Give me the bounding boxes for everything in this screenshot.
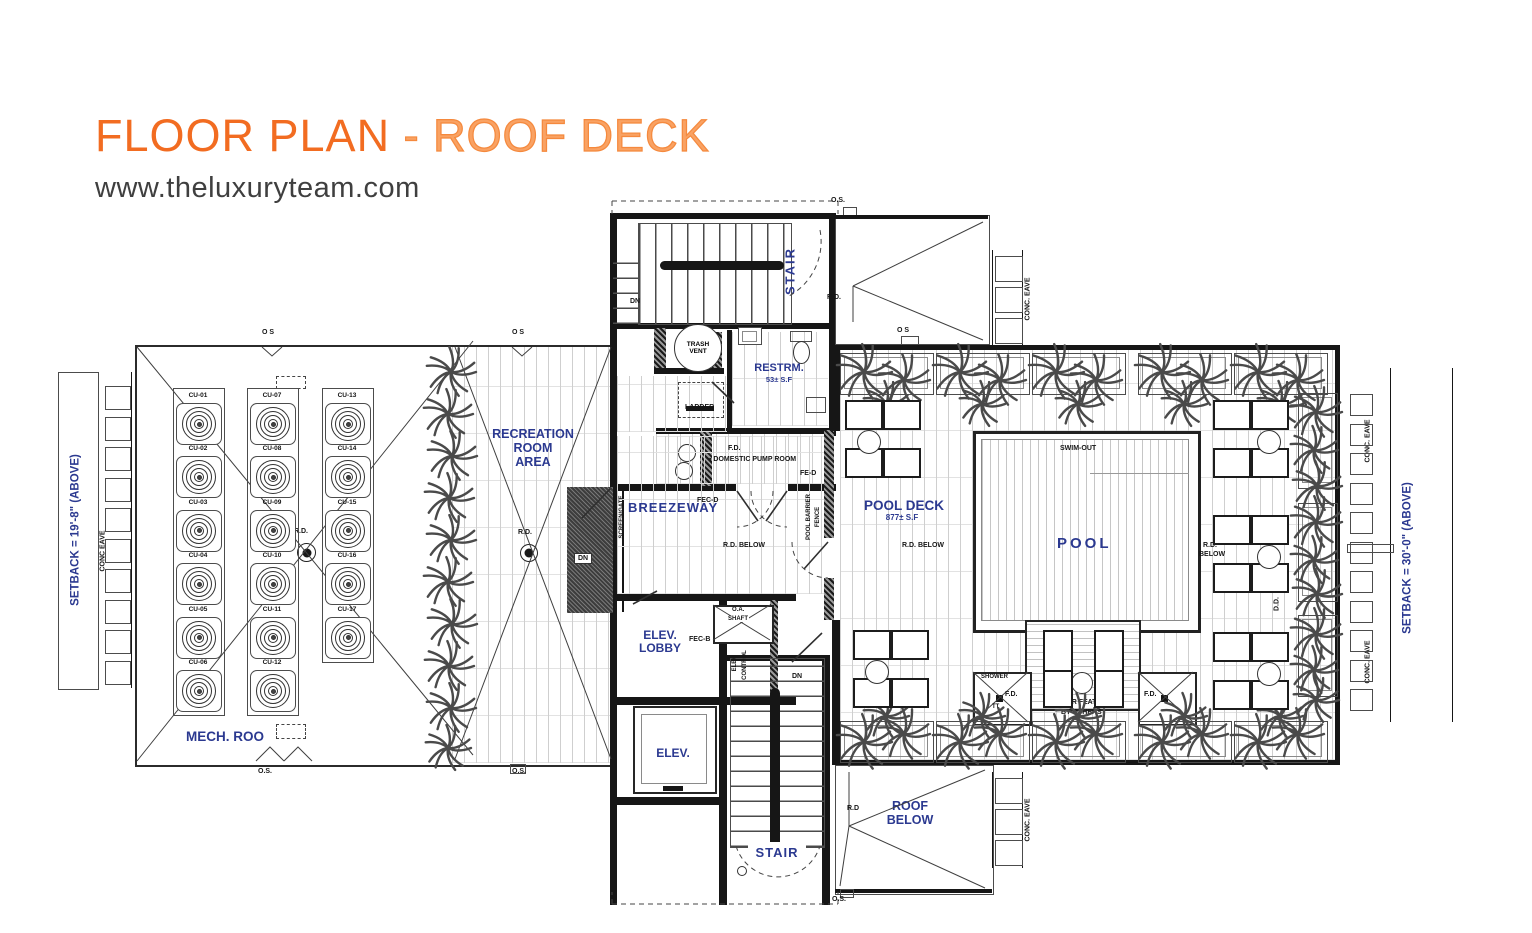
w bbox=[610, 594, 796, 601]
lounge-chair bbox=[883, 448, 921, 478]
pool-deck-area-label: 877± S.F bbox=[864, 514, 940, 523]
eave-tile bbox=[105, 478, 131, 502]
annotation-shower: SHOWER bbox=[981, 674, 1008, 680]
cu-label: CU-08 bbox=[250, 446, 294, 454]
circ bbox=[271, 689, 276, 694]
eave-tile bbox=[995, 778, 1023, 804]
annotation-r-d: R.D bbox=[847, 805, 859, 812]
website-text: www.theluxuryteam.com bbox=[95, 172, 420, 205]
annotation-r-d-below: R.D. BELOW bbox=[902, 542, 944, 549]
element bbox=[960, 693, 1005, 738]
water-feature-chair bbox=[1043, 630, 1073, 672]
element: ELEV. bbox=[624, 629, 696, 642]
palm-tree bbox=[1055, 381, 1101, 432]
cu-unit bbox=[250, 456, 296, 498]
elevator-label: ELEV. bbox=[648, 747, 698, 760]
stair-top-label: STAIR bbox=[784, 247, 799, 295]
circ bbox=[197, 689, 202, 694]
element: AREA bbox=[488, 455, 578, 469]
table bbox=[1257, 662, 1281, 686]
cu-unit bbox=[325, 510, 371, 552]
cu-unit bbox=[176, 563, 222, 605]
element bbox=[884, 714, 888, 718]
w bbox=[719, 598, 727, 905]
lounge-chair bbox=[853, 630, 891, 660]
cu-label: CU-12 bbox=[250, 660, 294, 668]
annotation-r-d-: R.D. bbox=[827, 294, 841, 301]
eave-tile bbox=[995, 256, 1023, 282]
eave-tile bbox=[1350, 394, 1373, 416]
eave-tile bbox=[1350, 542, 1373, 564]
element bbox=[1162, 693, 1207, 738]
annotation-conc-eave: CONC. EAVE bbox=[1025, 277, 1032, 320]
table bbox=[865, 660, 889, 684]
element bbox=[1054, 370, 1058, 374]
element bbox=[1076, 402, 1080, 406]
element bbox=[1056, 381, 1101, 426]
element bbox=[1315, 484, 1319, 488]
cu-label: CU-05 bbox=[176, 607, 220, 615]
annotation-d-d-: D.D. bbox=[1274, 597, 1281, 611]
cu-unit bbox=[250, 617, 296, 659]
circ bbox=[346, 475, 351, 480]
element bbox=[1314, 632, 1318, 636]
cu-unit bbox=[176, 403, 222, 445]
table bbox=[1257, 430, 1281, 454]
eave-tile bbox=[1350, 453, 1373, 475]
element: BELOW bbox=[878, 813, 942, 827]
element: LOBBY bbox=[624, 642, 696, 655]
w bbox=[822, 896, 830, 905]
cu-unit bbox=[250, 563, 296, 605]
eave-tile bbox=[1350, 512, 1373, 534]
lounge-chair bbox=[1213, 632, 1251, 662]
trash-vent: TRASHVENT bbox=[674, 324, 722, 372]
lounge-chair bbox=[1251, 515, 1289, 545]
w bbox=[992, 250, 993, 345]
element: ROOF bbox=[878, 799, 942, 813]
circ bbox=[346, 635, 351, 640]
circ bbox=[271, 528, 276, 533]
element bbox=[525, 549, 534, 558]
element bbox=[1055, 381, 1101, 427]
annotation-fec-b: FEC-B bbox=[689, 636, 710, 643]
pool-deck-label: POOL DECK bbox=[864, 498, 940, 513]
cu-unit bbox=[325, 563, 371, 605]
cu-unit bbox=[176, 617, 222, 659]
stair-top-side-steps bbox=[613, 258, 639, 324]
circ bbox=[271, 635, 276, 640]
annotation-o-a-: O.A. bbox=[731, 607, 745, 613]
annotation-conc-eave: CONC. EAVE bbox=[1025, 798, 1032, 841]
eave-tile bbox=[105, 600, 131, 624]
annotation-f-d-: F.D. bbox=[728, 445, 740, 452]
pool-label: POOL bbox=[1057, 536, 1112, 553]
element bbox=[1256, 370, 1260, 374]
palm-tree bbox=[1293, 677, 1339, 728]
w bbox=[610, 213, 617, 489]
w bbox=[835, 215, 988, 219]
table bbox=[857, 430, 881, 454]
eave-tile bbox=[995, 318, 1023, 344]
eave-tile bbox=[105, 630, 131, 654]
floor-plan: FLOOR PLAN - ROOF DECK www.theluxuryteam… bbox=[0, 0, 1532, 933]
lounge-chair bbox=[1213, 400, 1251, 430]
element bbox=[302, 548, 311, 557]
cu-label: CU-14 bbox=[325, 446, 369, 454]
annotation-fe-d: FE-D bbox=[800, 470, 816, 477]
eave-tile bbox=[1350, 601, 1373, 623]
element bbox=[1160, 370, 1164, 374]
element bbox=[426, 725, 471, 770]
lounge-chair bbox=[1213, 515, 1251, 545]
circ bbox=[737, 866, 747, 876]
annotation--domestic-pump-room: ▪ DOMESTIC PUMP ROOM bbox=[709, 456, 796, 463]
setback-right-label: SETBACK = 30'-0" (ABOVE) bbox=[1402, 482, 1415, 634]
cu-unit bbox=[250, 670, 296, 712]
annotation-f-d-: F.D. bbox=[1144, 691, 1156, 698]
w bbox=[610, 213, 836, 219]
annotation-o-s-: O.S. bbox=[258, 768, 272, 775]
eave-tile bbox=[1350, 424, 1373, 446]
cu-unit bbox=[250, 403, 296, 445]
circ bbox=[271, 582, 276, 587]
eave-tile bbox=[105, 386, 131, 410]
element bbox=[425, 725, 471, 771]
hw bbox=[824, 578, 834, 620]
element bbox=[449, 706, 453, 710]
element bbox=[1314, 520, 1318, 524]
cu-label: CU-09 bbox=[250, 500, 294, 508]
annotation-control: CONTROL bbox=[742, 650, 748, 680]
table bbox=[1071, 672, 1093, 694]
palm-tree bbox=[1161, 381, 1207, 432]
element: RECREATION bbox=[488, 427, 578, 441]
element bbox=[959, 381, 1005, 427]
annotation-fec-d: FEC-D bbox=[697, 497, 718, 504]
roof-drain bbox=[297, 543, 316, 562]
water-feature-chair bbox=[1094, 670, 1124, 708]
element bbox=[1312, 558, 1316, 562]
element bbox=[1294, 677, 1339, 722]
element bbox=[1314, 410, 1318, 414]
cu-unit bbox=[176, 670, 222, 712]
roof-below-label: ROOFBELOW bbox=[878, 799, 942, 827]
element bbox=[446, 746, 450, 750]
element bbox=[1312, 668, 1316, 672]
element bbox=[446, 412, 450, 416]
annotation-screen-gate: SCREEN/GATE bbox=[619, 496, 625, 539]
circ bbox=[197, 422, 202, 427]
lounge-chair bbox=[891, 630, 929, 660]
w bbox=[610, 797, 727, 805]
mop-sink bbox=[806, 397, 826, 413]
element bbox=[1315, 592, 1319, 596]
cu-label: CU-04 bbox=[176, 553, 220, 561]
a bbox=[1090, 473, 1189, 474]
element: TRASH bbox=[687, 341, 709, 348]
circ bbox=[271, 422, 276, 427]
annotation-f-d-: F.D. bbox=[1005, 691, 1017, 698]
palm-tree bbox=[959, 381, 1005, 432]
restroom-label: RESTRM. bbox=[730, 362, 828, 374]
circ bbox=[271, 475, 276, 480]
element bbox=[1293, 677, 1339, 723]
cu-label: CU-02 bbox=[176, 446, 220, 454]
dashR bbox=[276, 724, 306, 739]
eave-tile bbox=[105, 447, 131, 471]
element bbox=[447, 496, 451, 500]
element bbox=[1182, 402, 1186, 406]
eave-tile bbox=[1350, 689, 1373, 711]
water-feature-chair bbox=[1043, 670, 1073, 708]
cu-unit bbox=[176, 510, 222, 552]
eave-tile bbox=[105, 569, 131, 593]
water-feature-chair bbox=[1094, 630, 1124, 672]
cu-label: CU-10 bbox=[250, 553, 294, 561]
element bbox=[1162, 381, 1207, 426]
circ bbox=[346, 422, 351, 427]
lounge-chair bbox=[845, 400, 883, 430]
lounge-chair bbox=[1213, 563, 1251, 593]
element bbox=[980, 714, 984, 718]
circ bbox=[197, 582, 202, 587]
eave-tile bbox=[1350, 571, 1373, 593]
stair-bottom-rail bbox=[770, 688, 780, 848]
element bbox=[1314, 698, 1318, 702]
annotation-o-s: O S bbox=[262, 329, 274, 336]
eave-tile bbox=[1350, 630, 1373, 652]
toilet-bowl bbox=[793, 341, 810, 364]
eave-tile bbox=[1350, 660, 1373, 682]
title-sub: - ROOF DECK bbox=[390, 110, 710, 161]
annotation-r-d-: R.D. bbox=[518, 529, 532, 536]
element bbox=[1312, 448, 1316, 452]
mech-room-label: MECH. ROO bbox=[186, 729, 264, 744]
eave-tile bbox=[105, 539, 131, 563]
circ bbox=[197, 635, 202, 640]
element bbox=[449, 538, 453, 542]
element: ROOM bbox=[488, 441, 578, 455]
lounge-chair bbox=[1213, 448, 1251, 478]
element bbox=[1182, 714, 1186, 718]
eave-tile bbox=[1350, 483, 1373, 505]
w bbox=[610, 896, 617, 905]
tn2 bbox=[742, 331, 757, 342]
cu-label: CU-16 bbox=[325, 553, 369, 561]
circ bbox=[197, 475, 202, 480]
eave-tile bbox=[995, 840, 1023, 866]
recreation-room-label: RECREATIONROOMAREA bbox=[488, 427, 578, 469]
eave-tile bbox=[995, 809, 1023, 835]
element bbox=[958, 370, 962, 374]
element bbox=[447, 664, 451, 668]
annotation-o-s: O S bbox=[897, 327, 909, 334]
setback-left-label: SETBACK = 19'-8" (ABOVE) bbox=[70, 454, 83, 606]
element bbox=[449, 370, 453, 374]
cu-unit bbox=[325, 617, 371, 659]
cu-label: CU-15 bbox=[325, 500, 369, 508]
stair-handrail bbox=[660, 261, 784, 270]
roof-below bbox=[835, 765, 994, 895]
annotation-o-s: O S bbox=[512, 329, 524, 336]
escape-stair-hatch bbox=[567, 487, 613, 613]
cu-label: CU-03 bbox=[176, 500, 220, 508]
cu-label: CU-17 bbox=[325, 607, 369, 615]
annotation-ladder: LADDER bbox=[685, 404, 714, 411]
lounge-chair bbox=[891, 678, 929, 708]
title-main: FLOOR PLAN bbox=[95, 110, 390, 161]
element bbox=[450, 454, 454, 458]
w bbox=[663, 786, 683, 791]
cu-unit bbox=[325, 403, 371, 445]
circ bbox=[197, 528, 202, 533]
element bbox=[446, 580, 450, 584]
element bbox=[960, 381, 1005, 426]
circ bbox=[346, 582, 351, 587]
roof-drain bbox=[520, 544, 538, 562]
restroom-area-label: 53± S.F bbox=[730, 376, 828, 384]
annotation-elev-: ELEV. bbox=[732, 655, 738, 672]
w bbox=[1452, 368, 1453, 722]
palm-tree bbox=[425, 725, 471, 776]
lounge-chair bbox=[1213, 680, 1251, 710]
annotation-o-s-: O.S. bbox=[832, 896, 846, 903]
element bbox=[450, 622, 454, 626]
element bbox=[1161, 693, 1207, 739]
cu-label: CU-13 bbox=[325, 393, 369, 401]
element bbox=[1076, 714, 1080, 718]
annotation-o-s-: O.S. bbox=[512, 768, 526, 775]
element: VENT bbox=[689, 348, 706, 355]
cu-unit bbox=[250, 510, 296, 552]
circ bbox=[346, 528, 351, 533]
annotation-dn: DN bbox=[792, 673, 802, 680]
element bbox=[862, 370, 866, 374]
annotation-dn: DN bbox=[630, 298, 640, 305]
cu-unit bbox=[325, 456, 371, 498]
annotation-swim-out: SWIM-OUT bbox=[1060, 445, 1096, 452]
annotation-fence: FENCE bbox=[815, 507, 821, 527]
element bbox=[980, 402, 984, 406]
stair-bottom-label: STAIR bbox=[755, 845, 798, 860]
annotation-o-s-: O.S. bbox=[831, 197, 845, 204]
cu-label: CU-01 bbox=[176, 393, 220, 401]
eave-tile bbox=[105, 417, 131, 441]
page-title: FLOOR PLAN - ROOF DECK bbox=[95, 110, 710, 162]
stair-bottom-labelbox: STAIR bbox=[748, 842, 806, 862]
ladder-box bbox=[678, 382, 724, 418]
annotation-dn: DN bbox=[574, 553, 592, 564]
element bbox=[1161, 381, 1207, 427]
annotation-pool-barrier: POOL BARRIER bbox=[806, 494, 812, 540]
cu-label: CU-07 bbox=[250, 393, 294, 401]
eave-tile bbox=[105, 661, 131, 685]
palm-tree bbox=[959, 693, 1005, 744]
cu-label: CU-06 bbox=[176, 660, 220, 668]
lounge-chair bbox=[883, 400, 921, 430]
eave-tile bbox=[995, 287, 1023, 313]
a bbox=[981, 439, 1189, 621]
roof-top-right bbox=[835, 215, 990, 345]
stair-top-treads bbox=[638, 223, 792, 325]
cu-label: CU-11 bbox=[250, 607, 294, 615]
palm-tree bbox=[1161, 693, 1207, 744]
w bbox=[835, 889, 992, 893]
table bbox=[1257, 545, 1281, 569]
hw bbox=[824, 430, 834, 538]
annotation-below: BELOW bbox=[1199, 551, 1225, 558]
annotation-shaft: SHAFT bbox=[727, 616, 749, 622]
cu-unit bbox=[176, 456, 222, 498]
annotation-r-d-below: R.D. BELOW bbox=[723, 542, 765, 549]
lounge-chair bbox=[1251, 400, 1289, 430]
element bbox=[1278, 714, 1282, 718]
w bbox=[992, 772, 993, 868]
elev-lobby-label: ELEV.LOBBY bbox=[624, 629, 696, 656]
w bbox=[131, 372, 132, 688]
element bbox=[959, 693, 1005, 739]
eave-tile bbox=[105, 508, 131, 532]
lounge-chair bbox=[1251, 632, 1289, 662]
